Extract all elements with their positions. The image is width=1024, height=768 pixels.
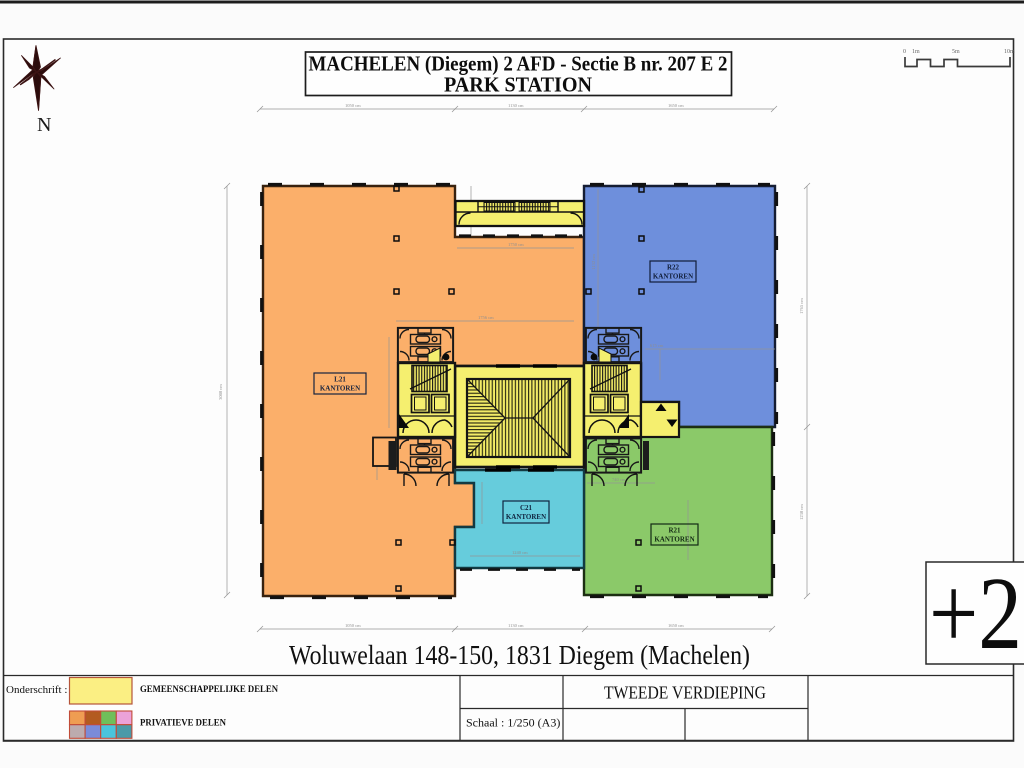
svg-text:3080 cm: 3080 cm (218, 384, 223, 400)
svg-text:PARK STATION: PARK STATION (444, 73, 592, 97)
svg-text:+2: +2 (929, 556, 1022, 671)
svg-text:1240 cm: 1240 cm (512, 550, 528, 555)
svg-text:KANTOREN: KANTOREN (654, 536, 694, 544)
svg-text:Woluwelaan 148-150, 1831 Diege: Woluwelaan 148-150, 1831 Diegem (Machele… (289, 640, 750, 670)
svg-text:KANTOREN: KANTOREN (653, 273, 693, 281)
svg-text:1650 cm: 1650 cm (668, 623, 684, 628)
svg-text:KANTOREN: KANTOREN (320, 385, 360, 393)
svg-text:L21: L21 (334, 376, 346, 384)
svg-text:KANTOREN: KANTOREN (506, 513, 546, 521)
svg-text:GEMEENSCHAPPELIJKE DELEN: GEMEENSCHAPPELIJKE DELEN (140, 684, 278, 694)
svg-text:1130 cm: 1130 cm (508, 623, 524, 628)
svg-text:PRIVATIEVE DELEN: PRIVATIEVE DELEN (140, 718, 226, 728)
svg-text:5m: 5m (952, 49, 960, 55)
svg-text:1050 cm: 1050 cm (345, 103, 361, 108)
svg-text:N: N (37, 114, 51, 136)
svg-text:1765 cm: 1765 cm (799, 298, 804, 314)
svg-text:1132 cm: 1132 cm (591, 254, 596, 270)
svg-text:Onderschrift :: Onderschrift : (6, 684, 67, 696)
svg-text:1756 cm: 1756 cm (478, 315, 494, 320)
svg-text:TWEEDE VERDIEPING: TWEEDE VERDIEPING (604, 683, 766, 703)
svg-text:1m: 1m (912, 49, 920, 55)
svg-text:0: 0 (903, 49, 906, 55)
svg-text:1050 cm: 1050 cm (345, 623, 361, 628)
svg-text:10m: 10m (1004, 49, 1015, 55)
svg-text:1750 cm: 1750 cm (508, 242, 524, 247)
svg-text:1650 cm: 1650 cm (668, 103, 684, 108)
svg-text:C21: C21 (520, 504, 533, 512)
svg-text:R21: R21 (668, 527, 681, 535)
svg-text:Schaal : 1/250 (A3): Schaal : 1/250 (A3) (466, 716, 560, 730)
svg-text:740 cm: 740 cm (612, 477, 626, 482)
svg-text:1230 cm: 1230 cm (799, 504, 804, 520)
svg-text:615 cm: 615 cm (650, 343, 664, 348)
svg-text:R22: R22 (667, 264, 680, 272)
svg-text:1130 cm: 1130 cm (508, 103, 524, 108)
